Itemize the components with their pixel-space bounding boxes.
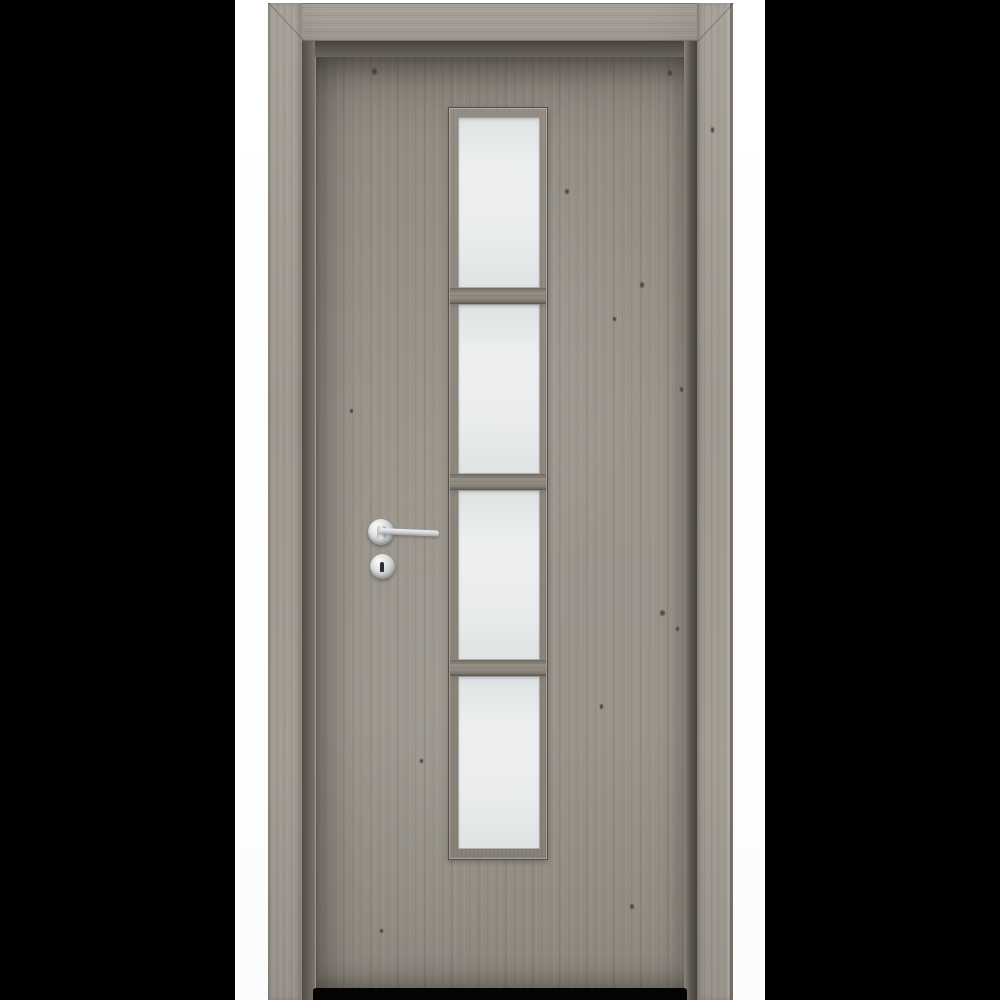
wood-knot	[564, 188, 570, 195]
wood-knot	[675, 626, 680, 632]
door-frame-top-casing	[268, 3, 733, 41]
door-with-frame	[268, 3, 733, 1000]
wood-knot	[639, 281, 645, 289]
glazing-strip	[448, 107, 548, 860]
glass-pane-1	[458, 117, 540, 288]
wood-knot	[679, 386, 684, 393]
wood-knot	[371, 67, 378, 76]
mullion-2	[450, 474, 546, 490]
frame-reveal-top	[302, 41, 697, 57]
wood-knot	[599, 703, 604, 710]
wood-knot	[629, 903, 635, 910]
wood-knot	[419, 758, 424, 764]
glass-pane-4	[458, 676, 540, 849]
door-frame-left-casing	[268, 3, 302, 1000]
wood-knot	[659, 609, 666, 617]
frame-reveal-left	[302, 41, 315, 1000]
wood-knot	[612, 316, 617, 322]
glass-pane-3	[458, 490, 540, 660]
door-frame-right-casing	[697, 3, 733, 1000]
wood-knot	[667, 69, 673, 77]
wood-knot	[710, 126, 715, 134]
mullion-3	[450, 660, 546, 676]
glass-pane-2	[458, 304, 540, 474]
keyhole-icon	[380, 562, 384, 572]
mullion-1	[450, 288, 546, 304]
wood-knot	[349, 408, 354, 414]
floor-gap-shadow	[313, 988, 687, 1000]
wood-knot	[379, 928, 384, 934]
frame-reveal-right	[684, 41, 697, 1000]
product-image-canvas	[0, 0, 1000, 1000]
